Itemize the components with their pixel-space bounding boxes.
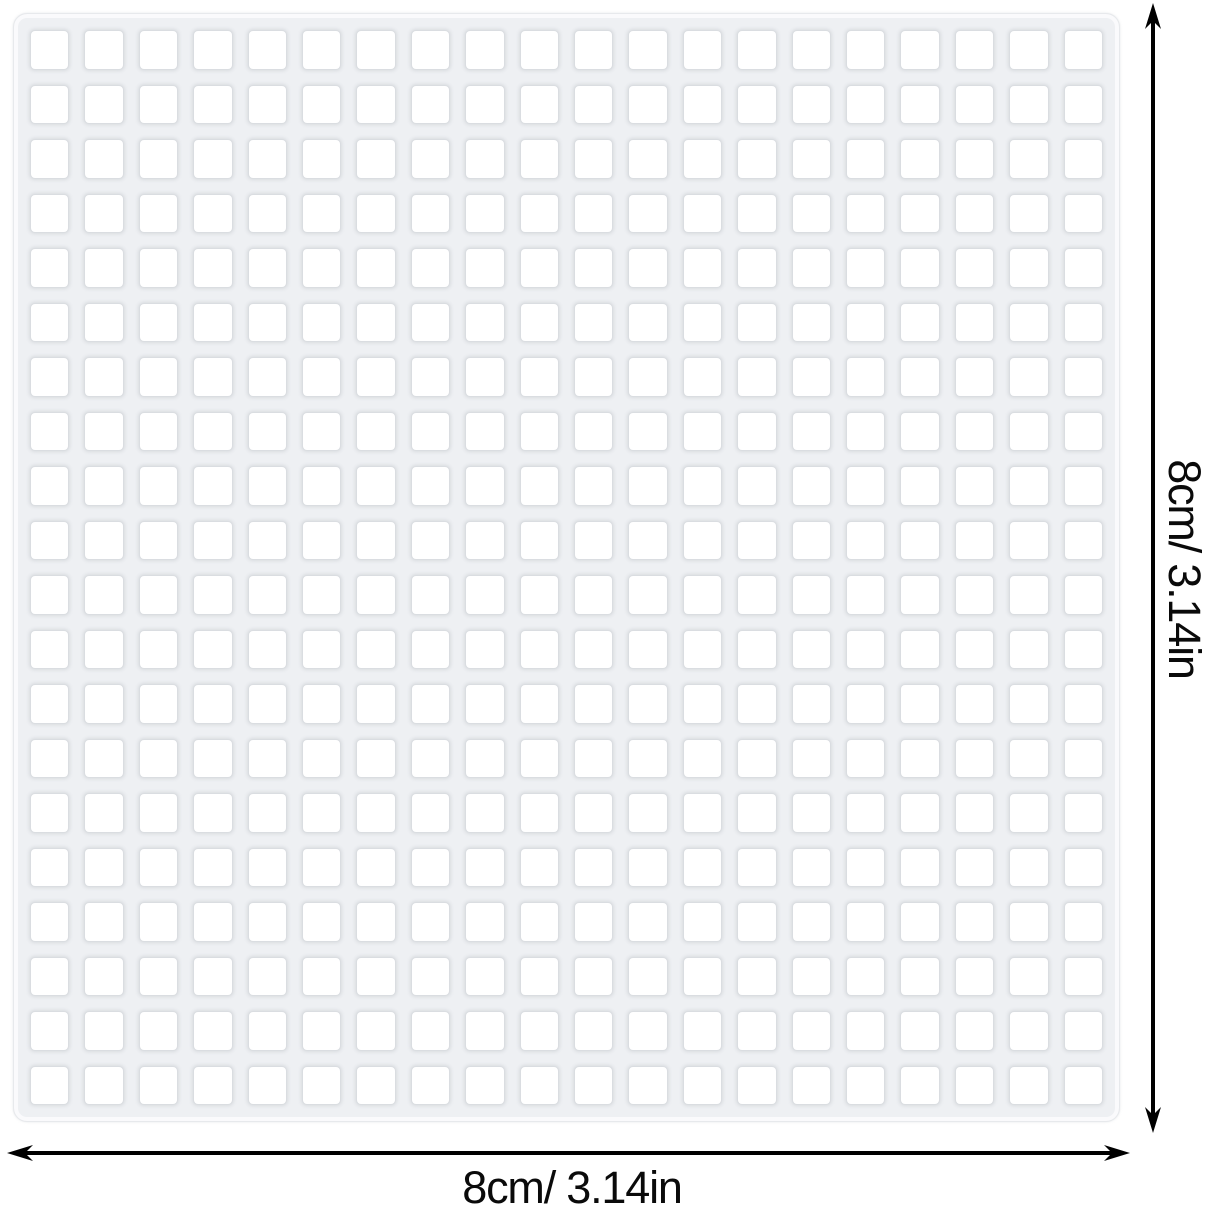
mesh-hole <box>302 412 341 452</box>
mesh-hole <box>846 248 885 288</box>
mesh-hole <box>683 575 722 615</box>
mesh-hole <box>737 357 776 397</box>
mesh-hole <box>411 739 450 779</box>
mesh-hole <box>1064 848 1103 888</box>
mesh-hole <box>955 248 994 288</box>
mesh-hole <box>1064 575 1103 615</box>
mesh-hole <box>84 303 123 343</box>
mesh-hole <box>30 303 69 343</box>
mesh-hole <box>900 139 939 179</box>
mesh-hole <box>84 739 123 779</box>
mesh-hole <box>792 1011 831 1051</box>
mesh-hole <box>1064 739 1103 779</box>
mesh-hole <box>683 739 722 779</box>
mesh-hole <box>465 739 504 779</box>
mesh-hole <box>1009 902 1048 942</box>
mesh-hole <box>1064 521 1103 561</box>
mesh-hole <box>302 739 341 779</box>
mesh-hole <box>411 357 450 397</box>
mesh-hole <box>737 739 776 779</box>
mesh-hole <box>465 194 504 234</box>
mesh-hole <box>84 1011 123 1051</box>
mesh-hole <box>846 303 885 343</box>
mesh-hole <box>683 139 722 179</box>
mesh-hole <box>411 684 450 724</box>
mesh-hole <box>1009 630 1048 670</box>
mesh-hole <box>302 303 341 343</box>
mesh-hole <box>683 466 722 506</box>
mesh-hole <box>574 848 613 888</box>
mesh-hole <box>411 1011 450 1051</box>
mesh-hole <box>574 521 613 561</box>
mesh-hole <box>84 85 123 125</box>
mesh-hole <box>955 85 994 125</box>
product-diagram: 8cm/ 3.14in 8cm/ 3.14in <box>0 0 1208 1209</box>
mesh-hole <box>193 684 232 724</box>
mesh-hole <box>737 1066 776 1106</box>
mesh-hole <box>900 575 939 615</box>
mesh-hole <box>1064 957 1103 997</box>
mesh-hole <box>139 139 178 179</box>
mesh-hole <box>792 630 831 670</box>
mesh-hole <box>302 85 341 125</box>
mesh-hole <box>792 1066 831 1106</box>
mesh-hole <box>356 85 395 125</box>
mesh-hole <box>792 684 831 724</box>
mesh-hole <box>846 902 885 942</box>
mesh-hole <box>30 85 69 125</box>
mesh-hole <box>683 957 722 997</box>
mesh-hole <box>356 357 395 397</box>
mesh-hole <box>574 630 613 670</box>
mesh-hole <box>1009 739 1048 779</box>
mesh-hole <box>1064 303 1103 343</box>
mesh-hole <box>683 30 722 70</box>
mesh-hole <box>520 848 559 888</box>
mesh-hole <box>846 1011 885 1051</box>
mesh-hole <box>520 85 559 125</box>
mesh-hole <box>574 793 613 833</box>
mesh-hole <box>955 575 994 615</box>
mesh-hole <box>900 684 939 724</box>
mesh-hole <box>683 684 722 724</box>
mesh-hole <box>900 739 939 779</box>
mesh-hole <box>792 412 831 452</box>
mesh-hole <box>1064 248 1103 288</box>
mesh-hole <box>955 466 994 506</box>
mesh-hole <box>955 684 994 724</box>
mesh-hole <box>193 1011 232 1051</box>
height-dimension-label: 8cm/ 3.14in <box>1159 459 1208 678</box>
mesh-hole <box>520 1011 559 1051</box>
mesh-hole <box>955 902 994 942</box>
mesh-hole <box>193 848 232 888</box>
mesh-hole <box>520 194 559 234</box>
mesh-hole <box>900 248 939 288</box>
mesh-hole <box>302 630 341 670</box>
mesh-hole <box>900 630 939 670</box>
mesh-hole <box>574 357 613 397</box>
width-dimension-label: 8cm/ 3.14in <box>462 1163 681 1209</box>
mesh-hole <box>30 357 69 397</box>
mesh-hole <box>465 85 504 125</box>
mesh-hole <box>30 684 69 724</box>
mesh-hole <box>139 85 178 125</box>
mesh-hole <box>628 412 667 452</box>
mesh-hole <box>628 85 667 125</box>
mesh-hole <box>30 848 69 888</box>
mesh-hole <box>84 630 123 670</box>
mesh-hole <box>574 85 613 125</box>
mesh-hole <box>248 248 287 288</box>
mesh-hole <box>846 793 885 833</box>
mesh-hole <box>302 466 341 506</box>
mesh-hole <box>574 739 613 779</box>
mesh-hole <box>520 521 559 561</box>
mesh-hole <box>792 793 831 833</box>
mesh-hole <box>139 684 178 724</box>
mesh-hole <box>84 466 123 506</box>
mesh-hole <box>411 139 450 179</box>
mesh-hole <box>1064 139 1103 179</box>
mesh-hole <box>683 85 722 125</box>
mesh-hole <box>139 412 178 452</box>
mesh-hole <box>84 412 123 452</box>
mesh-hole <box>302 902 341 942</box>
mesh-hole <box>737 303 776 343</box>
mesh-hole <box>792 139 831 179</box>
mesh-hole <box>683 194 722 234</box>
mesh-hole <box>628 139 667 179</box>
mesh-hole <box>737 1011 776 1051</box>
mesh-hole <box>465 684 504 724</box>
mesh-hole <box>30 739 69 779</box>
mesh-hole <box>193 194 232 234</box>
mesh-hole <box>792 957 831 997</box>
mesh-hole <box>139 957 178 997</box>
mesh-hole <box>846 739 885 779</box>
mesh-hole <box>193 30 232 70</box>
mesh-hole <box>955 1066 994 1106</box>
mesh-hole <box>792 739 831 779</box>
mesh-hole <box>520 248 559 288</box>
mesh-hole <box>628 848 667 888</box>
mesh-hole <box>846 630 885 670</box>
mesh-hole <box>356 412 395 452</box>
mesh-hole <box>139 303 178 343</box>
mesh-hole <box>139 521 178 561</box>
mesh-hole <box>84 848 123 888</box>
mesh-hole <box>30 630 69 670</box>
mesh-hole <box>356 521 395 561</box>
mesh-hole <box>193 957 232 997</box>
mesh-hole <box>792 248 831 288</box>
mesh-hole <box>900 357 939 397</box>
mesh-hole <box>465 357 504 397</box>
mesh-hole <box>139 1066 178 1106</box>
mesh-hole <box>30 30 69 70</box>
mesh-hole <box>465 575 504 615</box>
mesh-hole <box>1009 194 1048 234</box>
mesh-hole <box>900 957 939 997</box>
mesh-hole <box>139 248 178 288</box>
arrowhead-down-icon <box>1145 1107 1161 1133</box>
mesh-hole <box>574 684 613 724</box>
mesh-hole <box>193 357 232 397</box>
mesh-hole <box>1009 303 1048 343</box>
mesh-hole <box>900 466 939 506</box>
mesh-hole <box>84 357 123 397</box>
mesh-hole <box>683 412 722 452</box>
mesh-hole <box>139 194 178 234</box>
mesh-hole <box>846 466 885 506</box>
mesh-hole <box>1009 466 1048 506</box>
mesh-hole <box>520 630 559 670</box>
mesh-hole <box>574 248 613 288</box>
mesh-hole <box>1064 1011 1103 1051</box>
mesh-hole <box>900 303 939 343</box>
mesh-hole <box>628 739 667 779</box>
mesh-hole <box>737 521 776 561</box>
mesh-hole <box>1064 412 1103 452</box>
mesh-hole <box>356 1066 395 1106</box>
mesh-hole <box>411 1066 450 1106</box>
mesh-hole <box>302 1066 341 1106</box>
mesh-hole <box>900 793 939 833</box>
mesh-hole <box>1064 1066 1103 1106</box>
mesh-hole <box>737 30 776 70</box>
mesh-hole <box>411 521 450 561</box>
mesh-hole <box>193 793 232 833</box>
mesh-hole <box>955 357 994 397</box>
mesh-hole <box>955 30 994 70</box>
mesh-hole <box>628 1066 667 1106</box>
mesh-hole <box>955 739 994 779</box>
mesh-hole <box>193 630 232 670</box>
mesh-hole <box>1009 30 1048 70</box>
mesh-hole <box>465 248 504 288</box>
mesh-hole <box>248 1011 287 1051</box>
mesh-hole <box>30 1011 69 1051</box>
mesh-hole <box>1009 848 1048 888</box>
mesh-hole <box>248 30 287 70</box>
mesh-hole <box>411 575 450 615</box>
mesh-hole <box>411 248 450 288</box>
mesh-hole <box>683 521 722 561</box>
mesh-hole <box>248 194 287 234</box>
mesh-hole <box>356 194 395 234</box>
mesh-hole <box>248 85 287 125</box>
mesh-hole <box>139 1011 178 1051</box>
mesh-hole <box>248 575 287 615</box>
mesh-hole <box>574 957 613 997</box>
mesh-hole <box>411 194 450 234</box>
mesh-hole <box>1064 902 1103 942</box>
mesh-hole <box>356 139 395 179</box>
mesh-hole <box>193 85 232 125</box>
mesh-hole <box>248 684 287 724</box>
mesh-hole <box>628 30 667 70</box>
mesh-hole <box>846 357 885 397</box>
mesh-hole <box>356 630 395 670</box>
mesh-hole <box>628 793 667 833</box>
mesh-hole <box>792 85 831 125</box>
mesh-hole <box>30 793 69 833</box>
mesh-hole <box>628 303 667 343</box>
mesh-hole <box>574 412 613 452</box>
mesh-hole <box>302 521 341 561</box>
mesh-hole <box>302 139 341 179</box>
mesh-hole <box>465 957 504 997</box>
mesh-hole <box>465 630 504 670</box>
mesh-hole <box>628 575 667 615</box>
mesh-hole <box>520 30 559 70</box>
arrowhead-left-icon <box>7 1145 33 1161</box>
mesh-hole <box>574 575 613 615</box>
mesh-hole <box>465 303 504 343</box>
mesh-hole <box>737 248 776 288</box>
mesh-hole <box>683 793 722 833</box>
mesh-hole <box>737 848 776 888</box>
mesh-hole <box>628 194 667 234</box>
mesh-hole <box>1064 793 1103 833</box>
mesh-hole <box>683 1011 722 1051</box>
mesh-hole <box>411 412 450 452</box>
mesh-hole <box>248 139 287 179</box>
mesh-hole <box>737 630 776 670</box>
mesh-hole <box>465 466 504 506</box>
mesh-hole <box>846 521 885 561</box>
mesh-hole <box>520 412 559 452</box>
mesh-hole <box>574 466 613 506</box>
mesh-hole <box>683 902 722 942</box>
mesh-hole <box>900 1066 939 1106</box>
mesh-hole <box>846 30 885 70</box>
mesh-hole <box>792 521 831 561</box>
mesh-hole <box>411 630 450 670</box>
mesh-hole <box>30 466 69 506</box>
mesh-hole <box>139 739 178 779</box>
mesh-hole <box>465 793 504 833</box>
mesh-hole <box>84 1066 123 1106</box>
mesh-hole <box>955 957 994 997</box>
mesh-hole <box>792 30 831 70</box>
mesh-hole <box>628 902 667 942</box>
mesh-hole <box>1009 139 1048 179</box>
mesh-hole <box>683 848 722 888</box>
mesh-hole <box>683 357 722 397</box>
mesh-hole <box>628 466 667 506</box>
mesh-hole <box>84 902 123 942</box>
mesh-hole <box>356 793 395 833</box>
mesh-hole <box>520 902 559 942</box>
mesh-hole <box>248 1066 287 1106</box>
mesh-hole <box>139 630 178 670</box>
mesh-hole <box>356 1011 395 1051</box>
mesh-hole <box>302 357 341 397</box>
mesh-hole <box>900 848 939 888</box>
mesh-hole <box>30 1066 69 1106</box>
mesh-hole <box>846 684 885 724</box>
mesh-hole <box>574 902 613 942</box>
mesh-hole <box>1009 357 1048 397</box>
mesh-hole <box>955 303 994 343</box>
mesh-hole <box>520 466 559 506</box>
mesh-hole <box>465 1066 504 1106</box>
mesh-hole <box>302 848 341 888</box>
mesh-hole <box>411 848 450 888</box>
mesh-hole <box>193 739 232 779</box>
mesh-hole <box>792 303 831 343</box>
mesh-hole <box>30 902 69 942</box>
mesh-hole <box>84 30 123 70</box>
mesh-hole <box>520 303 559 343</box>
mesh-hole <box>356 684 395 724</box>
mesh-hole <box>955 521 994 561</box>
mesh-hole <box>411 466 450 506</box>
mesh-hole <box>792 194 831 234</box>
mesh-hole <box>193 1066 232 1106</box>
mesh-hole <box>737 902 776 942</box>
mesh-hole <box>628 684 667 724</box>
mesh-hole <box>356 303 395 343</box>
mesh-hole <box>248 303 287 343</box>
mesh-hole <box>683 1066 722 1106</box>
mesh-hole <box>356 466 395 506</box>
mesh-hole <box>248 630 287 670</box>
mesh-hole <box>737 194 776 234</box>
mesh-hole <box>465 412 504 452</box>
mesh-hole <box>356 848 395 888</box>
mesh-hole <box>356 575 395 615</box>
mesh-hole <box>1064 684 1103 724</box>
mesh-hole <box>193 575 232 615</box>
mesh-hole <box>683 303 722 343</box>
mesh-hole <box>1064 630 1103 670</box>
width-dimension-arrow <box>7 1145 1130 1161</box>
mesh-hole <box>737 575 776 615</box>
mesh-hole <box>1009 1066 1048 1106</box>
mesh-hole <box>846 957 885 997</box>
mesh-hole <box>411 902 450 942</box>
mesh-hole <box>737 139 776 179</box>
mesh-hole <box>193 248 232 288</box>
mesh-hole <box>302 575 341 615</box>
mesh-hole <box>84 684 123 724</box>
mesh-hole <box>84 248 123 288</box>
mesh-hole <box>356 248 395 288</box>
arrowhead-up-icon <box>1145 3 1161 29</box>
mesh-hole <box>84 139 123 179</box>
mesh-hole <box>84 957 123 997</box>
mesh-hole <box>628 957 667 997</box>
mesh-hole <box>139 848 178 888</box>
mesh-hole <box>411 793 450 833</box>
mesh-hole <box>846 85 885 125</box>
mesh-hole <box>356 957 395 997</box>
mesh-hole <box>628 521 667 561</box>
mesh-hole <box>356 739 395 779</box>
arrowhead-right-icon <box>1104 1145 1130 1161</box>
mesh-hole <box>302 248 341 288</box>
mesh-hole <box>900 1011 939 1051</box>
mesh-hole <box>248 412 287 452</box>
mesh-hole <box>520 575 559 615</box>
mesh-hole <box>520 139 559 179</box>
mesh-hole <box>520 793 559 833</box>
mesh-hole <box>411 30 450 70</box>
mesh-hole <box>411 957 450 997</box>
